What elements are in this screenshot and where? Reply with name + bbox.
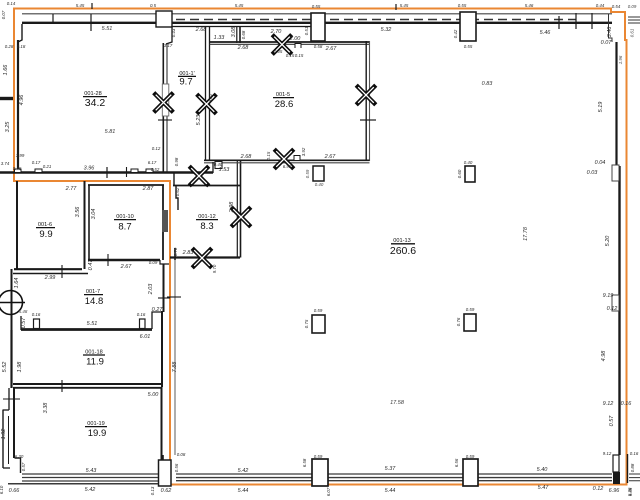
- svg-text:8.3: 8.3: [200, 221, 213, 232]
- svg-text:3.04: 3.04: [91, 209, 97, 220]
- svg-text:3.96: 3.96: [84, 166, 96, 172]
- svg-text:2.77: 2.77: [65, 186, 78, 192]
- svg-text:1.53: 1.53: [219, 167, 231, 173]
- svg-text:2.67: 2.67: [325, 46, 338, 52]
- svg-text:4.96: 4.96: [19, 94, 25, 106]
- svg-text:5.51: 5.51: [87, 321, 98, 327]
- svg-text:5.44: 5.44: [385, 488, 396, 494]
- svg-text:0.59: 0.59: [466, 307, 475, 312]
- svg-text:0.12: 0.12: [607, 306, 618, 312]
- svg-text:6.01: 6.01: [140, 334, 151, 340]
- svg-text:5.45: 5.45: [235, 3, 244, 8]
- svg-text:5.44: 5.44: [238, 488, 249, 494]
- svg-text:2.99: 2.99: [44, 275, 56, 281]
- svg-text:0.15: 0.15: [295, 53, 304, 58]
- svg-text:4.98: 4.98: [601, 350, 607, 362]
- svg-text:0.5: 0.5: [150, 3, 157, 8]
- svg-text:5.43: 5.43: [86, 468, 98, 474]
- svg-text:0.55: 0.55: [312, 4, 321, 9]
- svg-text:0.27: 0.27: [152, 307, 164, 313]
- svg-text:0.47: 0.47: [88, 259, 94, 271]
- svg-text:0.13: 0.13: [150, 486, 155, 495]
- svg-text:9.12: 9.12: [603, 451, 612, 456]
- svg-text:9.9: 9.9: [39, 229, 52, 240]
- svg-text:0.08: 0.08: [177, 452, 186, 457]
- svg-text:6.10: 6.10: [0, 485, 4, 494]
- svg-text:0.44: 0.44: [596, 3, 605, 8]
- svg-text:0.07: 0.07: [601, 40, 613, 46]
- svg-text:17.78: 17.78: [523, 226, 529, 241]
- svg-text:3.38: 3.38: [43, 402, 49, 414]
- svg-text:6.96: 6.96: [609, 488, 621, 494]
- svg-text:7.88: 7.88: [172, 361, 178, 373]
- svg-text:0.16: 0.16: [630, 451, 639, 456]
- svg-text:6.90: 6.90: [283, 164, 292, 169]
- svg-text:0.59: 0.59: [466, 454, 475, 459]
- svg-text:17.58: 17.58: [390, 400, 405, 406]
- svg-text:0.76: 0.76: [456, 317, 461, 326]
- svg-text:2.68: 2.68: [237, 45, 250, 51]
- svg-text:2.67: 2.67: [324, 154, 337, 160]
- svg-text:0.40: 0.40: [464, 160, 473, 165]
- svg-text:0.51: 0.51: [304, 26, 309, 35]
- svg-text:3.25: 3.25: [5, 121, 11, 133]
- svg-text:0.16: 0.16: [621, 401, 633, 407]
- svg-text:0.98: 0.98: [174, 157, 179, 166]
- svg-text:5.00: 5.00: [148, 392, 160, 398]
- svg-text:5.45: 5.45: [76, 3, 85, 8]
- svg-text:3.99: 3.99: [16, 153, 25, 158]
- svg-text:0.45: 0.45: [274, 49, 283, 54]
- svg-text:5.37: 5.37: [385, 466, 397, 472]
- svg-text:3.56: 3.56: [75, 206, 81, 218]
- svg-text:14.8: 14.8: [85, 296, 104, 307]
- svg-text:0.40: 0.40: [315, 182, 324, 187]
- svg-text:260.6: 260.6: [390, 245, 416, 257]
- svg-text:0.54: 0.54: [612, 4, 621, 9]
- svg-text:2.68: 2.68: [195, 27, 208, 33]
- svg-text:2.87: 2.87: [142, 186, 155, 192]
- svg-text:19.9: 19.9: [88, 428, 107, 439]
- svg-text:5.45: 5.45: [400, 3, 409, 8]
- svg-text:5.51: 5.51: [102, 26, 113, 32]
- svg-text:1.96: 1.96: [618, 55, 623, 64]
- svg-text:5.42: 5.42: [238, 468, 249, 474]
- svg-text:0.40: 0.40: [214, 162, 223, 167]
- svg-text:1.92: 1.92: [1, 429, 7, 440]
- svg-text:0.43: 0.43: [171, 28, 176, 37]
- svg-text:5.40: 5.40: [537, 467, 549, 473]
- svg-text:0.28: 0.28: [5, 44, 14, 49]
- svg-text:5.52: 5.52: [2, 362, 8, 373]
- svg-text:0.04: 0.04: [595, 160, 606, 166]
- svg-text:0.88: 0.88: [630, 463, 635, 472]
- svg-text:6.36: 6.36: [628, 487, 633, 496]
- svg-text:0.45: 0.45: [13, 166, 22, 171]
- svg-text:0.68: 0.68: [241, 30, 246, 39]
- svg-text:0.55: 0.55: [458, 3, 467, 8]
- svg-text:0.12: 0.12: [152, 146, 161, 151]
- svg-text:5.46: 5.46: [525, 3, 534, 8]
- svg-text:1.64: 1.64: [14, 278, 20, 289]
- svg-text:5.47: 5.47: [538, 485, 550, 491]
- svg-text:0.57: 0.57: [21, 462, 26, 471]
- svg-text:0.61: 0.61: [630, 28, 635, 37]
- svg-text:0.59: 0.59: [305, 169, 310, 178]
- svg-text:0.83: 0.83: [482, 81, 494, 87]
- svg-text:5.48: 5.48: [19, 309, 28, 314]
- svg-text:0.58: 0.58: [314, 44, 323, 49]
- svg-text:9.19: 9.19: [603, 293, 614, 299]
- svg-text:11.9: 11.9: [86, 357, 104, 368]
- svg-text:0.62: 0.62: [161, 488, 172, 494]
- svg-text:3.17: 3.17: [164, 43, 173, 48]
- svg-text:0.75: 0.75: [304, 319, 309, 328]
- svg-text:5.19: 5.19: [598, 102, 604, 113]
- svg-text:5.20: 5.20: [605, 235, 611, 247]
- svg-text:0.15: 0.15: [286, 53, 295, 58]
- svg-text:1.66: 1.66: [3, 64, 9, 76]
- svg-text:0.55: 0.55: [464, 44, 473, 49]
- svg-text:2.98: 2.98: [229, 201, 235, 214]
- svg-text:0.59: 0.59: [314, 454, 323, 459]
- svg-text:6.17: 6.17: [148, 160, 157, 165]
- svg-text:9.7: 9.7: [179, 77, 192, 88]
- svg-text:28.6: 28.6: [275, 99, 294, 110]
- svg-text:6.07: 6.07: [326, 487, 331, 496]
- svg-text:5.46: 5.46: [540, 30, 552, 36]
- svg-text:0.57: 0.57: [609, 415, 615, 427]
- svg-text:0.07: 0.07: [1, 10, 6, 19]
- svg-text:9.12: 9.12: [603, 401, 614, 407]
- svg-text:5.23: 5.23: [196, 114, 202, 126]
- svg-text:0.56: 0.56: [174, 463, 179, 472]
- svg-text:3.08: 3.08: [231, 26, 237, 38]
- svg-text:5.81: 5.81: [105, 129, 116, 135]
- svg-text:6.56: 6.56: [454, 458, 459, 467]
- svg-text:1.33: 1.33: [214, 35, 226, 41]
- svg-text:0.09: 0.09: [628, 4, 637, 9]
- svg-text:0.52: 0.52: [151, 167, 160, 172]
- svg-text:3.74: 3.74: [1, 161, 10, 166]
- svg-text:8.7: 8.7: [118, 222, 131, 233]
- svg-text:6.30: 6.30: [15, 454, 24, 459]
- svg-text:3.22: 3.22: [208, 93, 213, 102]
- svg-text:34.2: 34.2: [85, 97, 106, 109]
- svg-text:0.62: 0.62: [175, 187, 180, 196]
- svg-text:1.98: 1.98: [17, 361, 23, 373]
- svg-text:0.03: 0.03: [587, 170, 599, 176]
- svg-text:2.00: 2.00: [289, 36, 302, 42]
- svg-text:0.16: 0.16: [32, 312, 41, 317]
- svg-text:0.60: 0.60: [457, 169, 462, 178]
- svg-text:0.21: 0.21: [43, 164, 52, 169]
- svg-text:2.83: 2.83: [182, 250, 195, 256]
- svg-text:0.59: 0.59: [314, 308, 323, 313]
- svg-text:2.67: 2.67: [120, 264, 133, 270]
- svg-text:0.70: 0.70: [173, 247, 178, 256]
- svg-text:2.70: 2.70: [270, 29, 283, 35]
- svg-text:5.32: 5.32: [381, 27, 392, 33]
- svg-text:0.66: 0.66: [9, 488, 21, 494]
- svg-text:3.92: 3.92: [301, 147, 306, 156]
- svg-text:2.03: 2.03: [148, 283, 154, 296]
- svg-text:0.12: 0.12: [593, 486, 604, 492]
- svg-text:5.42: 5.42: [85, 487, 96, 493]
- svg-text:0.17: 0.17: [32, 160, 41, 165]
- svg-text:0.16: 0.16: [137, 312, 146, 317]
- svg-text:0.15: 0.15: [266, 151, 271, 160]
- svg-text:0.18: 0.18: [17, 44, 26, 49]
- svg-text:6.58: 6.58: [302, 458, 307, 467]
- svg-text:3.46: 3.46: [607, 26, 613, 38]
- svg-text:0.42: 0.42: [453, 29, 458, 38]
- svg-text:2.68: 2.68: [240, 154, 253, 160]
- svg-text:0.57: 0.57: [21, 317, 27, 329]
- svg-text:0.14: 0.14: [7, 1, 16, 6]
- svg-text:0.09: 0.09: [149, 260, 158, 265]
- svg-text:9.70: 9.70: [212, 264, 217, 273]
